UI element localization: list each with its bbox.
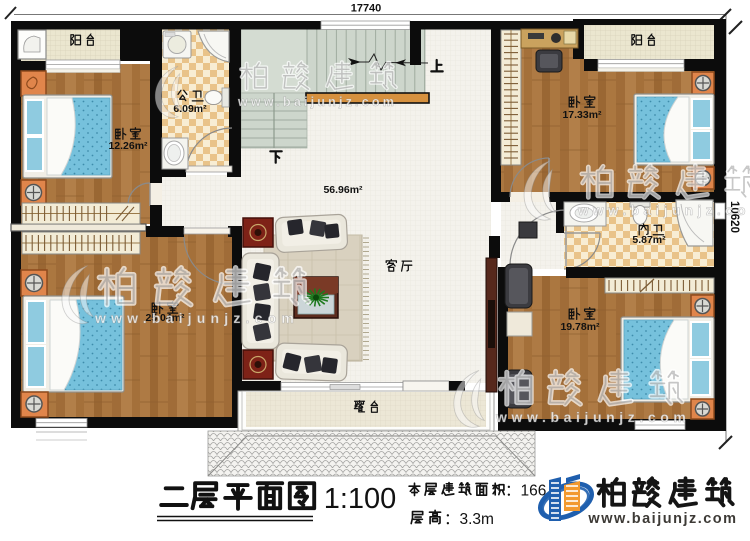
svg-text:56.96m²: 56.96m² — [323, 184, 363, 196]
svg-text:17740: 17740 — [351, 3, 382, 15]
svg-text:www.baijunjz.com: www.baijunjz.com — [587, 511, 737, 527]
svg-text:5.87m²: 5.87m² — [632, 234, 666, 246]
svg-text:www.baijunjz.com: www.baijunjz.com — [94, 310, 299, 326]
svg-text:12.26m²: 12.26m² — [108, 140, 148, 152]
svg-text:www.baijunjz.com: www.baijunjz.com — [495, 409, 690, 425]
svg-text:www.baijunjz.com: www.baijunjz.com — [237, 95, 397, 109]
svg-text:：3.3m: ：3.3m — [444, 511, 494, 528]
svg-text:1:100: 1:100 — [324, 483, 397, 515]
svg-text:17.33m²: 17.33m² — [562, 109, 602, 121]
svg-text:www.baijunjz.com: www.baijunjz.com — [577, 203, 750, 218]
svg-text:19.78m²: 19.78m² — [560, 321, 600, 333]
